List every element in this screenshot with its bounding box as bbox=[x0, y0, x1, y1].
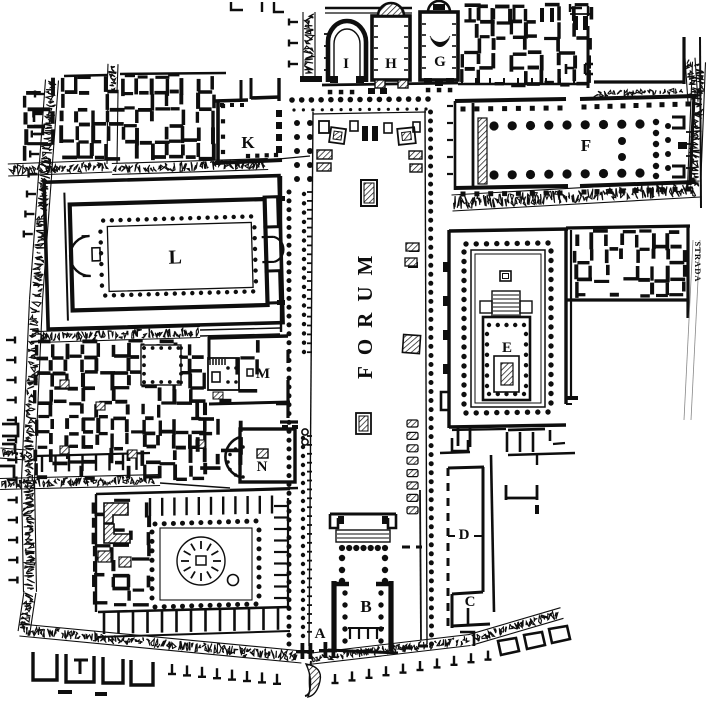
svg-text:L: L bbox=[168, 246, 182, 268]
svg-text:G: G bbox=[434, 54, 446, 70]
svg-text:B: B bbox=[360, 597, 371, 616]
svg-text:H: H bbox=[385, 56, 397, 72]
svg-text:E: E bbox=[502, 340, 512, 356]
svg-text:C: C bbox=[465, 594, 476, 610]
svg-text:STRADA: STRADA bbox=[693, 242, 703, 283]
svg-text:K: K bbox=[241, 133, 255, 152]
svg-text:FORUM: FORUM bbox=[353, 245, 377, 379]
svg-text:A: A bbox=[315, 626, 326, 642]
svg-text:I: I bbox=[343, 56, 349, 72]
svg-text:D: D bbox=[459, 527, 470, 543]
svg-text:F: F bbox=[581, 136, 591, 155]
svg-text:N: N bbox=[257, 459, 268, 475]
